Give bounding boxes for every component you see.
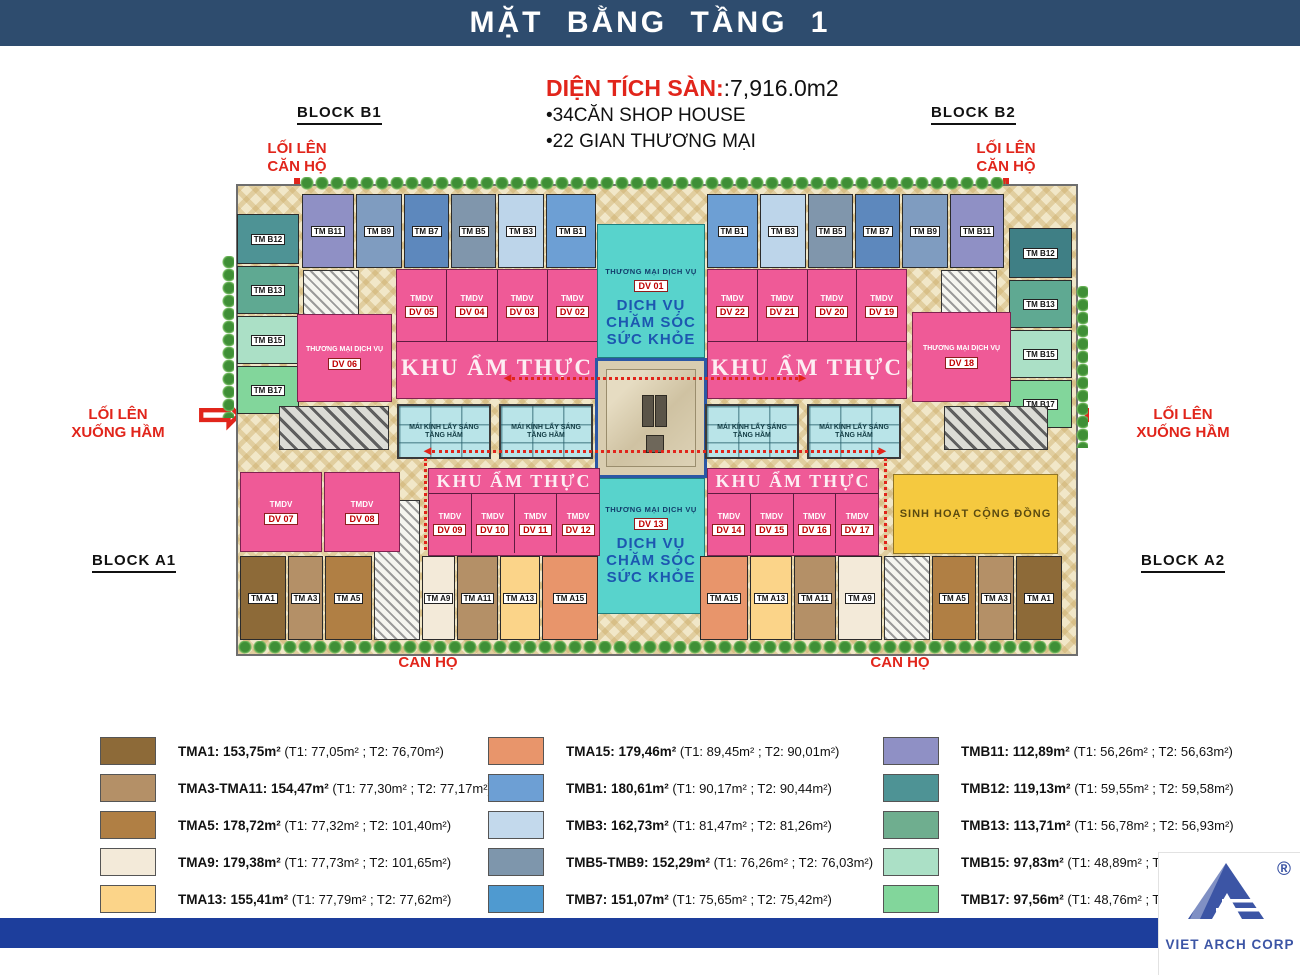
legend-item-tmb7: TMB7: 151,07m² (T1: 75,65m² ; T2: 75,42m… — [488, 885, 832, 913]
legend-swatch — [100, 774, 156, 802]
tree-hedge-bottom — [238, 641, 1062, 654]
tree-hedge-top — [300, 177, 1006, 190]
unit-tm-a3-left: TM A3 — [288, 556, 323, 640]
unit-tm-b1-right: TM B1 — [707, 194, 758, 268]
unit-tm-b12-right: TM B12 — [1009, 228, 1072, 278]
food-court-label: KHU ẨM THỰC — [708, 342, 906, 394]
circulation-line-upper — [512, 377, 798, 380]
page-title: MẶT BẰNG TẦNG 1 — [0, 0, 1300, 46]
dv-cell-09: TMDVDV 09 — [429, 494, 471, 553]
elevator-shaft — [655, 395, 667, 427]
mountain-logo-icon — [1170, 853, 1290, 937]
health-service-top: THƯƠNG MẠI DỊCH VỤ DV 01 DỊCH VỤ CHĂM SÓ… — [597, 224, 705, 358]
unit-tm-b11-right: TM B11 — [950, 194, 1004, 268]
unit-tm-b7-left: TM B7 — [404, 194, 449, 268]
dv-cell-10: TMDVDV 10 — [471, 494, 514, 553]
commerce-dv07: TMDV DV 07 — [240, 472, 322, 552]
legend-swatch — [883, 848, 939, 876]
legend-item-tma1: TMA1: 153,75m² (T1: 77,05m² ; T2: 76,70m… — [100, 737, 444, 765]
health-service-bottom: THƯƠNG MẠI DỊCH VỤ DV 13 DỊCH VỤ CHĂM SÓ… — [597, 478, 705, 614]
stair-core-top-right — [941, 270, 997, 316]
circulation-line-exit-right — [884, 458, 887, 550]
dv-cell-02: TMDVDV 02 — [547, 270, 597, 341]
registered-mark: ® — [1277, 859, 1291, 881]
legend-swatch — [100, 848, 156, 876]
access-basement-left: LỐI LÊN XUỐNG HẦM — [48, 406, 188, 442]
dv-cell-19: TMDVDV 19 — [856, 270, 906, 341]
retail-count: •22 GIAN THƯƠNG MẠI — [546, 129, 839, 155]
legend-item-tma3-tma11: TMA3-TMA11: 154,47m² (T1: 77,30m² ; T2: … — [100, 774, 492, 802]
dv-cell-05: TMDVDV 05 — [397, 270, 446, 341]
unit-tm-a9-left: TM A9 — [422, 556, 455, 640]
unit-tm-a11-right: TM A11 — [794, 556, 836, 640]
unit-tm-a3-right: TM A3 — [978, 556, 1014, 640]
unit-tm-a5-right: TM A5 — [932, 556, 976, 640]
unit-tm-a13-right: TM A13 — [750, 556, 792, 640]
legend-item-tma5: TMA5: 178,72m² (T1: 77,32m² ; T2: 101,40… — [100, 811, 451, 839]
unit-tm-b9-right: TM B9 — [902, 194, 948, 268]
unit-tm-a1-right: TM A1 — [1016, 556, 1062, 640]
floor-area-value: :7,916.0m2 — [724, 75, 839, 101]
legend-swatch — [488, 811, 544, 839]
legend-item-tma13: TMA13: 155,41m² (T1: 77,79m² ; T2: 77,62… — [100, 885, 451, 913]
block-a2-label: BLOCK A2 — [1141, 552, 1225, 573]
floor-area-label: DIỆN TÍCH SÀN: — [546, 75, 724, 101]
legend-item-tmb1: TMB1: 180,61m² (T1: 90,17m² ; T2: 90,44m… — [488, 774, 832, 802]
circulation-line-exit-left — [424, 458, 427, 550]
viet-arch-logo: ® VIET ARCH CORP — [1158, 852, 1300, 975]
legend-swatch — [488, 885, 544, 913]
legend-item-tmb3: TMB3: 162,73m² (T1: 81,47m² ; T2: 81,26m… — [488, 811, 832, 839]
food-court-label: KHU ẨM THỰC — [397, 342, 597, 394]
arrowhead-left-icon: ◄ — [501, 371, 514, 384]
floor-plan-page: MẶT BẰNG TẦNG 1 DIỆN TÍCH SÀN::7,916.0m2… — [0, 0, 1300, 975]
unit-tm-b15-right: TM B15 — [1009, 330, 1072, 378]
unit-tm-b5-left: TM B5 — [451, 194, 496, 268]
footer-bar — [0, 918, 1300, 948]
access-basement-right: LỐI LÊN XUỐNG HẦM — [1108, 406, 1258, 442]
unit-tm-b3-right: TM B3 — [760, 194, 806, 268]
legend-item-tmb13: TMB13: 113,71m² (T1: 56,78m² ; T2: 56,93… — [883, 811, 1234, 839]
stair-core-top-left — [303, 270, 359, 316]
unit-tm-a15-right: TM A15 — [700, 556, 748, 640]
legend-item-tmb5-tmb9: TMB5-TMB9: 152,29m² (T1: 76,26m² ; T2: 7… — [488, 848, 873, 876]
unit-tm-b3-left: TM B3 — [498, 194, 544, 268]
commerce-dv18: THƯƠNG MẠI DỊCH VỤ DV 18 — [912, 312, 1011, 402]
stair-core-bottom-right — [884, 556, 930, 640]
shophouse-count: •34CĂN SHOP HOUSE — [546, 103, 839, 129]
floor-info: DIỆN TÍCH SÀN::7,916.0m2 •34CĂN SHOP HOU… — [538, 72, 847, 157]
dv-cell-12: TMDVDV 12 — [556, 494, 599, 553]
unit-tm-b7-right: TM B7 — [855, 194, 900, 268]
basement-ramp-left — [279, 406, 389, 450]
unit-tm-b9-left: TM B9 — [356, 194, 402, 268]
dv-cell-15: TMDVDV 15 — [750, 494, 793, 553]
block-b2-label: BLOCK B2 — [931, 104, 1016, 125]
legend-swatch — [100, 885, 156, 913]
unit-tm-a5-left: TM A5 — [325, 556, 372, 640]
legend-swatch — [488, 774, 544, 802]
food-court-lower-left: KHU ẨM THỰC TMDVDV 09 TMDVDV 10 TMDVDV 1… — [428, 468, 600, 556]
arrowhead-right-icon: ► — [796, 371, 809, 384]
food-court-label: KHU ẨM THỰC — [429, 469, 599, 493]
arrowhead-right-icon: ► — [876, 444, 889, 457]
unit-tm-b13-right: TM B13 — [1009, 280, 1072, 328]
circulation-line-lower — [432, 450, 880, 453]
unit-tm-a9-right: TM A9 — [838, 556, 882, 640]
unit-tm-b1-left: TM B1 — [546, 194, 596, 268]
dv-cell-20: TMDVDV 20 — [807, 270, 857, 341]
unit-tm-a1-left: TM A1 — [240, 556, 286, 640]
dv-cell-16: TMDVDV 16 — [793, 494, 836, 553]
unit-tm-a11-left: TM A11 — [457, 556, 498, 640]
unit-tm-b11-left: TM B11 — [302, 194, 354, 268]
legend-swatch — [100, 737, 156, 765]
unit-tm-b5-right: TM B5 — [808, 194, 853, 268]
block-b1-label: BLOCK B1 — [297, 104, 382, 125]
dv-cell-14: TMDVDV 14 — [708, 494, 750, 553]
elevator-shaft — [642, 395, 654, 427]
commerce-dv06: THƯƠNG MẠI DỊCH VỤ DV 06 — [297, 314, 392, 402]
arrowhead-left-icon: ◄ — [421, 444, 434, 457]
unit-tm-a13-left: TM A13 — [500, 556, 540, 640]
basement-ramp-right — [944, 406, 1048, 450]
legend-item-tmb17: TMB17: 97,56m² (T1: 48,76m² ; T2: 48 — [883, 885, 1189, 913]
legend-swatch — [883, 885, 939, 913]
legend-swatch — [883, 774, 939, 802]
page-title-text: MẶT BẰNG TẦNG 1 — [470, 6, 831, 40]
legend-item-tmb12: TMB12: 119,13m² (T1: 59,55m² ; T2: 59,58… — [883, 774, 1234, 802]
logo-text: VIET ARCH CORP — [1165, 937, 1294, 952]
unit-tm-b12-left: TM B12 — [237, 214, 299, 264]
legend-item-tma9: TMA9: 179,38m² (T1: 77,73m² ; T2: 101,65… — [100, 848, 451, 876]
tree-hedge-right — [1076, 286, 1088, 448]
dv-cell-03: TMDVDV 03 — [497, 270, 547, 341]
dv-cell-17: TMDVDV 17 — [835, 494, 878, 553]
floor-area-line: DIỆN TÍCH SÀN::7,916.0m2 — [546, 74, 839, 103]
unit-tm-b15-left: TM B15 — [237, 316, 299, 364]
community-hall: SINH HOẠT CỘNG ĐỒNG — [893, 474, 1058, 554]
tree-hedge-left — [222, 256, 234, 418]
legend-swatch — [883, 811, 939, 839]
legend-item-tma15: TMA15: 179,46m² (T1: 89,45m² ; T2: 90,01… — [488, 737, 839, 765]
legend-swatch — [488, 737, 544, 765]
dv-cell-22: TMDVDV 22 — [708, 270, 757, 341]
legend-item-tmb11: TMB11: 112,89m² (T1: 56,26m² ; T2: 56,63… — [883, 737, 1233, 765]
dv-cell-21: TMDVDV 21 — [757, 270, 807, 341]
food-court-label: KHU ẨM THỰC — [708, 469, 878, 493]
block-a1-label: BLOCK A1 — [92, 552, 176, 573]
legend-swatch — [488, 848, 544, 876]
unit-tm-b13-left: TM B13 — [237, 266, 299, 314]
dv-cell-11: TMDVDV 11 — [514, 494, 557, 553]
legend-swatch — [100, 811, 156, 839]
commerce-dv08: TMDV DV 08 — [324, 472, 400, 552]
food-court-lower-right: KHU ẨM THỰC TMDVDV 14 TMDVDV 15 TMDVDV 1… — [707, 468, 879, 556]
dv-cell-04: TMDVDV 04 — [446, 270, 496, 341]
legend-swatch — [883, 737, 939, 765]
unit-tm-a15-left: TM A15 — [542, 556, 598, 640]
central-courtyard — [595, 358, 707, 478]
